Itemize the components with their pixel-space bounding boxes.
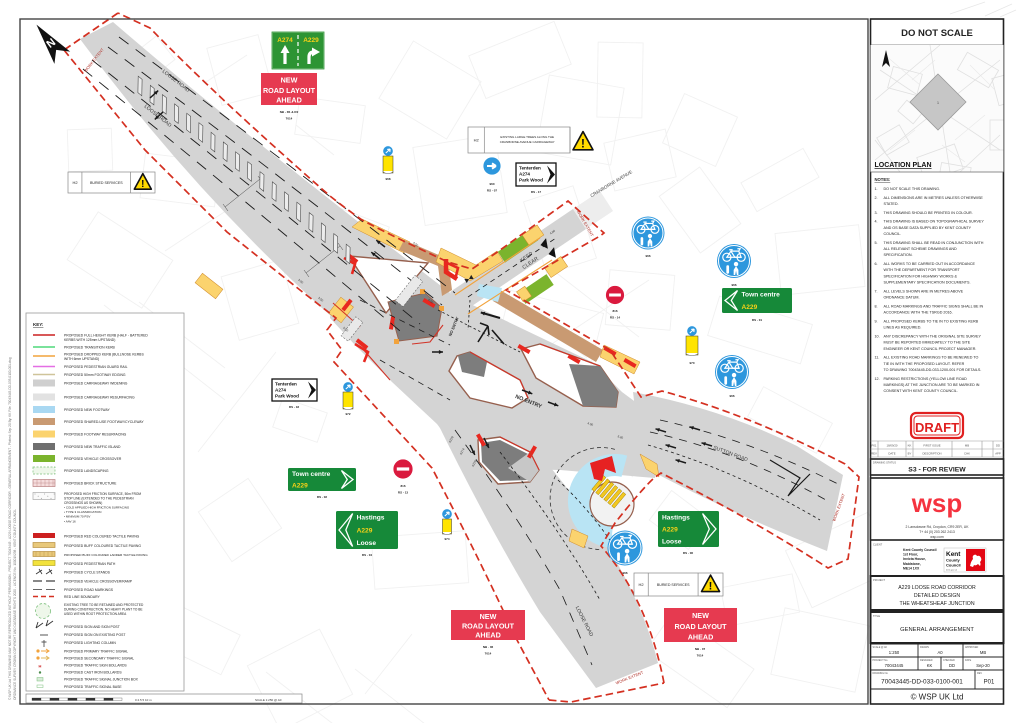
svg-text:REV: REV bbox=[871, 452, 877, 456]
svg-text:ORDNANCE SURVEY CROWN COPYRIGH: ORDNANCE SURVEY CROWN COPYRIGHT AND DATA… bbox=[13, 509, 17, 700]
svg-text:Loose: Loose bbox=[357, 540, 377, 547]
svg-text:© WSP UK Ltd: © WSP UK Ltd bbox=[911, 693, 964, 702]
svg-text:970: 970 bbox=[689, 361, 694, 365]
svg-text:BURIED SERVICES: BURIED SERVICES bbox=[657, 583, 690, 587]
svg-text:• MINIMUM 70 PSV: • MINIMUM 70 PSV bbox=[64, 515, 90, 519]
svg-text:SCALE 1:250 @ A0: SCALE 1:250 @ A0 bbox=[255, 698, 282, 702]
svg-text:DATE: DATE bbox=[888, 452, 895, 456]
svg-text:ROAD LAYOUT: ROAD LAYOUT bbox=[462, 622, 515, 631]
svg-text:THE WHEATSHEAF JUNCTION: THE WHEATSHEAF JUNCTION bbox=[899, 601, 974, 607]
svg-text:PARKING RESTRICTIONS (YELLOW L: PARKING RESTRICTIONS (YELLOW LINE ROAD bbox=[884, 377, 968, 381]
svg-text:APP: APP bbox=[995, 452, 1001, 456]
svg-text:ALL PROPOSED KERBS TO TIE IN T: ALL PROPOSED KERBS TO TIE IN TO EXISTING… bbox=[884, 319, 979, 323]
svg-text:• TYPE 3 CLASSIFICATION: • TYPE 3 CLASSIFICATION bbox=[64, 510, 101, 514]
svg-text:PROPOSED 50mm FOOTWAY EDGING: PROPOSED 50mm FOOTWAY EDGING bbox=[64, 373, 126, 377]
svg-text:A229: A229 bbox=[357, 527, 373, 534]
svg-text:DURING CONSTRUCTION. NO HEAVY: DURING CONSTRUCTION. NO HEAVY PLANT TO B… bbox=[64, 608, 143, 612]
svg-text:Park Wood: Park Wood bbox=[275, 394, 299, 399]
svg-text:Town centre: Town centre bbox=[292, 471, 331, 478]
svg-text:PROPOSED PEDESTRIAN PATH: PROPOSED PEDESTRIAN PATH bbox=[64, 562, 116, 566]
svg-text:0 2.5 5: 0 2.5 5 10 m bbox=[135, 698, 152, 702]
svg-text:7014: 7014 bbox=[485, 652, 492, 656]
svg-text:CHK: CHK bbox=[964, 452, 970, 456]
svg-text:DRAWN: DRAWN bbox=[920, 646, 929, 649]
svg-text:7014: 7014 bbox=[697, 654, 704, 658]
svg-text:10.: 10. bbox=[875, 334, 880, 338]
svg-text:972: 972 bbox=[345, 412, 350, 416]
svg-text:Tenterden: Tenterden bbox=[519, 166, 541, 171]
svg-text:PROPOSED LANDSCAPING: PROPOSED LANDSCAPING bbox=[64, 469, 109, 473]
svg-text:PROPOSED BUFF COLOURED TACTILE: PROPOSED BUFF COLOURED TACTILE PAVING bbox=[64, 544, 141, 548]
svg-text:DESIGNED: DESIGNED bbox=[920, 659, 933, 662]
svg-text:MB: MB bbox=[965, 444, 969, 448]
svg-text:MB: MB bbox=[980, 650, 986, 655]
svg-text:H: H bbox=[39, 664, 42, 669]
svg-text:18/09/20: 18/09/20 bbox=[887, 444, 898, 448]
svg-text:USED WITHIN ROOT PROTECTION AR: USED WITHIN ROOT PROTECTION AREA bbox=[64, 612, 127, 616]
svg-text:STOP LINE (EXTENDED TO THE PED: STOP LINE (EXTENDED TO THE PEDESTRIAN bbox=[64, 497, 134, 501]
svg-text:PROPOSED NEW TRAFFIC ISLAND: PROPOSED NEW TRAFFIC ISLAND bbox=[64, 445, 121, 449]
svg-text:PROPOSED FOOTWAY RESURFACING: PROPOSED FOOTWAY RESURFACING bbox=[64, 433, 127, 437]
svg-text:PROPOSED VEHICLE CROSSOVER: PROPOSED VEHICLE CROSSOVER bbox=[64, 457, 122, 461]
svg-text:9.: 9. bbox=[875, 319, 878, 323]
svg-text:PROPOSED HIGH FRICTION SURFACE: PROPOSED HIGH FRICTION SURFACE, 50m FROM bbox=[64, 492, 141, 496]
svg-text:MUST BE REPORTED IMMEDIATELY T: MUST BE REPORTED IMMEDIATELY TO THE SITE bbox=[884, 341, 971, 345]
svg-text:NOTES:: NOTES: bbox=[875, 177, 891, 182]
svg-text:FIRST ISSUE: FIRST ISSUE bbox=[923, 444, 940, 448]
svg-text:!: ! bbox=[581, 137, 585, 151]
svg-text:PROPOSED BRICK STRUCTURE: PROPOSED BRICK STRUCTURE bbox=[64, 482, 117, 486]
svg-text:PROJECT No.: PROJECT No. bbox=[873, 659, 889, 662]
svg-text:STATED.: STATED. bbox=[884, 202, 899, 206]
svg-text:CLIENT: CLIENT bbox=[873, 543, 883, 547]
svg-text:H2: H2 bbox=[72, 180, 78, 185]
svg-text:PROPOSED TRAFFIC SIGNAL BASE: PROPOSED TRAFFIC SIGNAL BASE bbox=[64, 685, 122, 689]
svg-text:ORDNANCE DATUM.: ORDNANCE DATUM. bbox=[884, 296, 920, 300]
svg-text:A229 LOOSE ROAD CORRIDOR: A229 LOOSE ROAD CORRIDOR bbox=[898, 585, 976, 591]
svg-text:DRAWING STATUS: DRAWING STATUS bbox=[873, 461, 896, 465]
svg-text:• AAV 16: • AAV 16 bbox=[64, 519, 76, 523]
svg-text:Sep-20: Sep-20 bbox=[976, 663, 990, 668]
svg-text:NEW: NEW bbox=[281, 76, 298, 85]
svg-text:ALL RELEVANT SCHEME DRAWINGS A: ALL RELEVANT SCHEME DRAWINGS AND bbox=[884, 247, 957, 251]
svg-text:Kent County Council: Kent County Council bbox=[903, 548, 937, 552]
svg-text:PROPOSED CYCLE STANDS: PROPOSED CYCLE STANDS bbox=[64, 571, 111, 575]
svg-text:6.: 6. bbox=[875, 262, 878, 266]
svg-text:PROPOSED CAST IRON BOLLARDS: PROPOSED CAST IRON BOLLARDS bbox=[64, 671, 122, 675]
svg-text:PROPOSED TRANSITION KERB: PROPOSED TRANSITION KERB bbox=[64, 346, 116, 350]
svg-text:A229: A229 bbox=[292, 483, 308, 490]
svg-text:RED LINE BOUNDARY: RED LINE BOUNDARY bbox=[64, 595, 100, 599]
svg-text:Town centre: Town centre bbox=[742, 292, 781, 299]
svg-text:PROPOSED BUFF COLOURED LADDER: PROPOSED BUFF COLOURED LADDER TACTILE PA… bbox=[64, 553, 148, 557]
svg-text:KEY:: KEY: bbox=[33, 322, 44, 327]
svg-text:AHEAD: AHEAD bbox=[276, 95, 302, 104]
svg-text:A229: A229 bbox=[303, 37, 319, 44]
svg-text:WITH THE DEPARTMENT FOR TRANSP: WITH THE DEPARTMENT FOR TRANSPORT bbox=[884, 268, 961, 272]
svg-text:ALL EXISTING ROAD MARKINGS TO: ALL EXISTING ROAD MARKINGS TO BE RENEWED… bbox=[884, 356, 979, 360]
svg-text:ACCORDANCE WITH THE TSRGD 2016: ACCORDANCE WITH THE TSRGD 2016. bbox=[884, 311, 953, 315]
svg-text:RS - 17: RS - 17 bbox=[531, 190, 542, 194]
svg-text:DATE: DATE bbox=[965, 659, 972, 662]
svg-text:Tenterden: Tenterden bbox=[275, 382, 297, 387]
svg-text:A229: A229 bbox=[662, 526, 678, 533]
svg-text:DD: DD bbox=[996, 444, 1000, 448]
svg-text:974: 974 bbox=[444, 537, 449, 541]
svg-text:PROPOSED ROAD MARKINGS: PROPOSED ROAD MARKINGS bbox=[64, 588, 114, 592]
svg-text:KK: KK bbox=[927, 663, 933, 668]
svg-text:A0: A0 bbox=[937, 650, 943, 655]
svg-text:966: 966 bbox=[645, 254, 650, 258]
svg-text:PROPOSED PRIMARY TRAFFIC SIGNA: PROPOSED PRIMARY TRAFFIC SIGNAL bbox=[64, 650, 128, 654]
svg-text:RS - 01: RS - 01 bbox=[752, 318, 763, 322]
svg-text:ALL DIMENSIONS ARE IN METRES U: ALL DIMENSIONS ARE IN METRES UNLESS OTHE… bbox=[884, 196, 984, 200]
svg-text:DETAILED DESIGN: DETAILED DESIGN bbox=[914, 593, 961, 599]
svg-text:4.: 4. bbox=[875, 220, 878, 224]
svg-text:THIS DRAWING SHOULD BE PRINTED: THIS DRAWING SHOULD BE PRINTED IN COLOUR… bbox=[884, 211, 973, 215]
svg-text:NEW: NEW bbox=[480, 612, 497, 621]
svg-text:NEW: NEW bbox=[692, 611, 709, 620]
svg-text:PROPOSED RED COLOURED TACTILE: PROPOSED RED COLOURED TACTILE PAVING bbox=[64, 535, 140, 539]
svg-text:© WSP UK Ltd THIS DRAWING MAY: © WSP UK Ltd THIS DRAWING MAY NOT BE REP… bbox=[8, 357, 12, 700]
svg-text:PROPOSED SHARED-USE FOOTWAY/CY: PROPOSED SHARED-USE FOOTWAY/CYCLEWAY bbox=[64, 420, 144, 424]
svg-text:NB - R1 & R2: NB - R1 & R2 bbox=[280, 110, 299, 114]
svg-text:A274: A274 bbox=[277, 37, 293, 44]
svg-text:RS - 13: RS - 13 bbox=[398, 491, 409, 495]
svg-text:8.: 8. bbox=[875, 304, 878, 308]
svg-text:PROPOSED SIGN ON EXISTING POST: PROPOSED SIGN ON EXISTING POST bbox=[64, 633, 125, 637]
svg-text:11.: 11. bbox=[875, 356, 880, 360]
svg-text:ALL ROAD MARKINGS AND TRAFFIC: ALL ROAD MARKINGS AND TRAFFIC SIGNS SHAL… bbox=[884, 304, 984, 308]
svg-text:WITH 6mm UPSTAND): WITH 6mm UPSTAND) bbox=[64, 357, 99, 361]
svg-text:70043445: 70043445 bbox=[885, 663, 904, 668]
svg-text:Loose: Loose bbox=[662, 538, 682, 545]
svg-text:GENERAL ARRANGEMENT: GENERAL ARRANGEMENT bbox=[900, 627, 974, 633]
svg-text:1.: 1. bbox=[875, 187, 878, 191]
svg-text:816: 816 bbox=[400, 484, 405, 488]
svg-text:COUNCIL.: COUNCIL. bbox=[884, 232, 902, 236]
svg-text:THIS DRAWING SHALL BE READ IN: THIS DRAWING SHALL BE READ IN CONJUNCTIO… bbox=[884, 241, 984, 245]
svg-text:1:250: 1:250 bbox=[889, 650, 900, 655]
svg-text:P01: P01 bbox=[872, 444, 877, 448]
svg-text:EXISTING LARGE TREES ALONG THE: EXISTING LARGE TREES ALONG THE bbox=[500, 135, 554, 139]
svg-text:APPROVED: APPROVED bbox=[965, 646, 979, 649]
svg-text:Council: Council bbox=[946, 563, 961, 568]
svg-text:ANY DISCREPANCY WITH THE ORIGI: ANY DISCREPANCY WITH THE ORIGINAL SITE S… bbox=[884, 334, 982, 338]
svg-text:• COLD APPLIED HIGH FRICTION: • COLD APPLIED HIGH FRICTION SURFACING bbox=[64, 506, 130, 510]
svg-text:DO NOT SCALE THIS DRAWING.: DO NOT SCALE THIS DRAWING. bbox=[884, 187, 940, 191]
svg-text:LINES AS REQUIRED.: LINES AS REQUIRED. bbox=[884, 326, 922, 330]
svg-text:A229: A229 bbox=[742, 304, 758, 311]
svg-text:LOCATION PLAN: LOCATION PLAN bbox=[875, 162, 932, 169]
svg-text:MARKINGS) AT THE JUNCTION ARE: MARKINGS) AT THE JUNCTION ARE TO BE MARK… bbox=[884, 383, 980, 387]
svg-text:PROPOSED TRAFFIC SIGN BOLLARDS: PROPOSED TRAFFIC SIGN BOLLARDS bbox=[64, 664, 127, 668]
svg-text:TO DRAWING 70043445-DD-033-120: TO DRAWING 70043445-DD-033-1200-001 FOR … bbox=[884, 368, 982, 372]
svg-text:966: 966 bbox=[731, 283, 736, 287]
svg-text:DRAFT: DRAFT bbox=[915, 420, 959, 435]
svg-text:1st Floor,: 1st Floor, bbox=[903, 553, 918, 557]
svg-text:ROAD LAYOUT: ROAD LAYOUT bbox=[674, 622, 727, 631]
svg-text:H2: H2 bbox=[639, 582, 645, 587]
svg-text:5.: 5. bbox=[875, 241, 878, 245]
svg-text:DRAWING No.: DRAWING No. bbox=[873, 672, 889, 675]
svg-text:T+ 44 (0) 203 262 2413: T+ 44 (0) 203 262 2413 bbox=[919, 530, 955, 534]
svg-text:CRANBORNE AVENUE CARRIAGEWAY: CRANBORNE AVENUE CARRIAGEWAY bbox=[500, 140, 555, 144]
svg-text:RS - 02: RS - 02 bbox=[317, 495, 328, 499]
svg-text:DO NOT SCALE: DO NOT SCALE bbox=[901, 28, 973, 39]
svg-text:RS - 06: RS - 06 bbox=[683, 551, 694, 555]
svg-text:P01: P01 bbox=[984, 680, 995, 686]
svg-text:wsp.com: wsp.com bbox=[930, 535, 944, 539]
svg-text:966: 966 bbox=[622, 571, 627, 575]
svg-text:NB - 06: NB - 06 bbox=[483, 645, 494, 649]
svg-text:966: 966 bbox=[729, 394, 734, 398]
svg-text:kent.gov.uk: kent.gov.uk bbox=[946, 569, 958, 572]
svg-text:PROPOSED CARRIAGEWAY RESURFACI: PROPOSED CARRIAGEWAY RESURFACING bbox=[64, 396, 135, 400]
svg-text:ROAD LAYOUT: ROAD LAYOUT bbox=[263, 86, 316, 95]
svg-text:PROPOSED SECONDARY TRAFFIC SIG: PROPOSED SECONDARY TRAFFIC SIGNAL bbox=[64, 657, 134, 661]
svg-text:968: 968 bbox=[385, 177, 390, 181]
svg-text:2 Lansdowne Rd, Croydon, CR9 2: 2 Lansdowne Rd, Croydon, CR9 2ER, UK bbox=[906, 525, 970, 529]
svg-text:12.: 12. bbox=[875, 377, 880, 381]
svg-text:EXISTING TREE TO BE RETAINED A: EXISTING TREE TO BE RETAINED AND PROTECT… bbox=[64, 603, 144, 607]
svg-text:PROPOSED VEHICLE CROSSOVER/RAM: PROPOSED VEHICLE CROSSOVER/RAMP bbox=[64, 580, 133, 584]
svg-text:AHEAD: AHEAD bbox=[475, 631, 501, 640]
svg-text:PROPOSED SIGN AND SIGN POST: PROPOSED SIGN AND SIGN POST bbox=[64, 625, 120, 629]
svg-text:PROJECT: PROJECT bbox=[873, 578, 886, 582]
svg-text:7014: 7014 bbox=[286, 117, 293, 121]
svg-text:NB - 07: NB - 07 bbox=[695, 647, 706, 651]
svg-text:!: ! bbox=[141, 178, 145, 190]
svg-text:960: 960 bbox=[489, 182, 494, 186]
svg-text:DESCRIPTION: DESCRIPTION bbox=[922, 452, 941, 456]
svg-text:TITLE: TITLE bbox=[873, 614, 880, 618]
svg-text:REV: REV bbox=[977, 672, 982, 675]
svg-text:RS - 18: RS - 18 bbox=[289, 405, 300, 409]
svg-text:KK: KK bbox=[908, 444, 912, 448]
svg-text:CONSENT WITH KENT COUNTY COUNC: CONSENT WITH KENT COUNTY COUNCIL. bbox=[884, 389, 958, 393]
svg-text:S3 - FOR REVIEW: S3 - FOR REVIEW bbox=[908, 467, 966, 474]
svg-text:PROPOSED NEW FOOTWAY: PROPOSED NEW FOOTWAY bbox=[64, 408, 111, 412]
svg-text:3.: 3. bbox=[875, 211, 878, 215]
svg-text:7.: 7. bbox=[875, 289, 878, 293]
svg-text:Invicta House,: Invicta House, bbox=[903, 557, 926, 561]
svg-text:AND OS BASE DATA SUPPLIED BY K: AND OS BASE DATA SUPPLIED BY KENT COUNTY bbox=[884, 226, 972, 230]
svg-text:!: ! bbox=[709, 581, 713, 593]
svg-text:DD: DD bbox=[949, 663, 955, 668]
svg-text:70043445-DD-033-0100-001: 70043445-DD-033-0100-001 bbox=[881, 679, 963, 686]
svg-text:Hastings: Hastings bbox=[357, 515, 385, 522]
svg-text:Hastings: Hastings bbox=[662, 514, 690, 521]
svg-text:BY: BY bbox=[908, 452, 912, 456]
svg-text:wsp: wsp bbox=[911, 488, 963, 518]
svg-text:PROPOSED FULL HEIGHT KERB (HAL: PROPOSED FULL HEIGHT KERB (HALF - BATTER… bbox=[64, 334, 148, 338]
svg-text:816: 816 bbox=[612, 309, 617, 313]
svg-text:PROPOSED DROPPED KERB (BULLNOS: PROPOSED DROPPED KERB (BULLNOSE KERBS bbox=[64, 353, 144, 357]
svg-text:A274: A274 bbox=[519, 172, 530, 177]
svg-text:TIE IN WITH THE PROPOSED LAYOU: TIE IN WITH THE PROPOSED LAYOUT. REFER bbox=[884, 362, 965, 366]
svg-text:PROPOSED LIGHTING COLUMN: PROPOSED LIGHTING COLUMN bbox=[64, 641, 116, 645]
svg-text:CHECKED: CHECKED bbox=[943, 659, 955, 662]
svg-text:SPECIFICATION FOR HIGHWAY WORK: SPECIFICATION FOR HIGHWAY WORKS & bbox=[884, 274, 958, 278]
svg-text:Maidstone,: Maidstone, bbox=[903, 562, 921, 566]
svg-text:A274: A274 bbox=[275, 388, 286, 393]
svg-text:ME14 1XX: ME14 1XX bbox=[903, 566, 920, 570]
svg-text:PROPOSED CARRIAGEWAY WIDENIN: PROPOSED CARRIAGEWAY WIDENING bbox=[64, 382, 128, 386]
svg-text:ALL LEVELS SHOWN ARE IN METRES: ALL LEVELS SHOWN ARE IN METRES ABOVE bbox=[884, 289, 964, 293]
svg-text:2.: 2. bbox=[875, 196, 878, 200]
svg-text:SPECIFICATION.: SPECIFICATION. bbox=[884, 253, 913, 257]
svg-text:ENGINEER OR KENT COUNCIL PROJE: ENGINEER OR KENT COUNCIL PROJECT MANAGER… bbox=[884, 347, 977, 351]
svg-text:RS - 14: RS - 14 bbox=[610, 316, 621, 320]
svg-text:KERBS WITH 125mm UPSTAND): KERBS WITH 125mm UPSTAND) bbox=[64, 338, 115, 342]
svg-text:Park Wood: Park Wood bbox=[519, 178, 543, 183]
svg-text:PROPOSED PEDESTRIAN GUARD RAIL: PROPOSED PEDESTRIAN GUARD RAIL bbox=[64, 365, 128, 369]
svg-text:PROPOSED TRAFFIC SIGNAL JUNCTI: PROPOSED TRAFFIC SIGNAL JUNCTION BOX bbox=[64, 678, 139, 682]
svg-text:RS - 07: RS - 07 bbox=[487, 189, 498, 193]
svg-text:SCALE @ A0: SCALE @ A0 bbox=[873, 646, 888, 649]
svg-text:THIS DRAWING IS BASED ON TOPOG: THIS DRAWING IS BASED ON TOPOGRAPHICAL S… bbox=[884, 220, 985, 224]
svg-text:BURIED SERVICES: BURIED SERVICES bbox=[90, 181, 123, 185]
svg-text:RS - 04: RS - 04 bbox=[362, 553, 373, 557]
svg-text:AHEAD: AHEAD bbox=[688, 632, 714, 641]
svg-text:ALL WORKS TO BE CARRIED OUT IN: ALL WORKS TO BE CARRIED OUT IN ACCORDANC… bbox=[884, 262, 976, 266]
svg-text:H2: H2 bbox=[474, 138, 480, 143]
svg-text:SUPPLEMENTARY SPECIFICATION DO: SUPPLEMENTARY SPECIFICATION DOCUMENTS. bbox=[884, 281, 971, 285]
